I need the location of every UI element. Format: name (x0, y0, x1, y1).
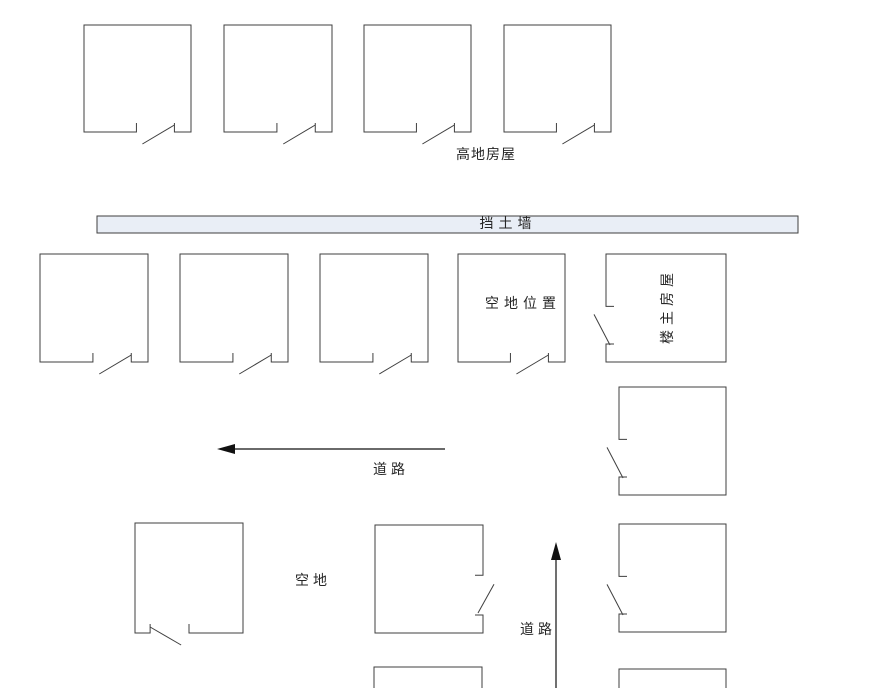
vacant-spot-label: 空地位置 (485, 297, 561, 311)
site-plan-diagram: 高地房屋 挡土墙 空地位置 楼主房屋 道路 空地 道路 (0, 0, 886, 688)
right-house-3-partial-outline (619, 669, 726, 688)
top-house-4-outline (504, 25, 611, 132)
highland-houses-label: 高地房屋 (456, 148, 516, 162)
top-house-1-door-swing (142, 125, 174, 144)
retaining-wall-label: 挡土墙 (480, 217, 537, 231)
road-north-label: 道路 (520, 623, 556, 637)
right-house-2-door-swing (607, 584, 623, 615)
right-house-1-outline (619, 387, 726, 495)
mid-house-3-door-swing (379, 355, 411, 374)
bottom-left-house-outline (135, 523, 243, 633)
top-house-2-door-swing (283, 125, 315, 144)
vacant-spot-house-door-swing (516, 355, 548, 374)
right-house-1-door-swing (607, 447, 623, 478)
top-house-3-outline (364, 25, 471, 132)
vacant-area-label: 空地 (295, 574, 331, 588)
retaining-wall-bar (97, 216, 798, 233)
top-house-1-outline (84, 25, 191, 132)
owner-house-door-swing (594, 314, 610, 345)
plan-drawing (0, 0, 886, 688)
road-west-label: 道路 (373, 463, 409, 477)
right-house-2-outline (619, 524, 726, 632)
bottom-middle-house-partial-outline (374, 667, 482, 688)
top-house-3-door-swing (422, 125, 454, 144)
top-house-2-outline (224, 25, 332, 132)
top-house-4-door-swing (562, 125, 594, 144)
mid-house-3-outline (320, 254, 428, 362)
bottom-middle-house-outline (375, 525, 483, 633)
road-arrow-west-head (217, 444, 235, 454)
owner-house-label: 楼主房屋 (661, 268, 675, 344)
mid-house-2-door-swing (239, 355, 271, 374)
bottom-left-house-door-swing (150, 627, 181, 645)
bottom-middle-house-door-swing (478, 584, 494, 613)
road-arrow-north-head (551, 542, 561, 560)
mid-house-2-outline (180, 254, 288, 362)
mid-house-1-outline (40, 254, 148, 362)
mid-house-1-door-swing (99, 355, 131, 374)
